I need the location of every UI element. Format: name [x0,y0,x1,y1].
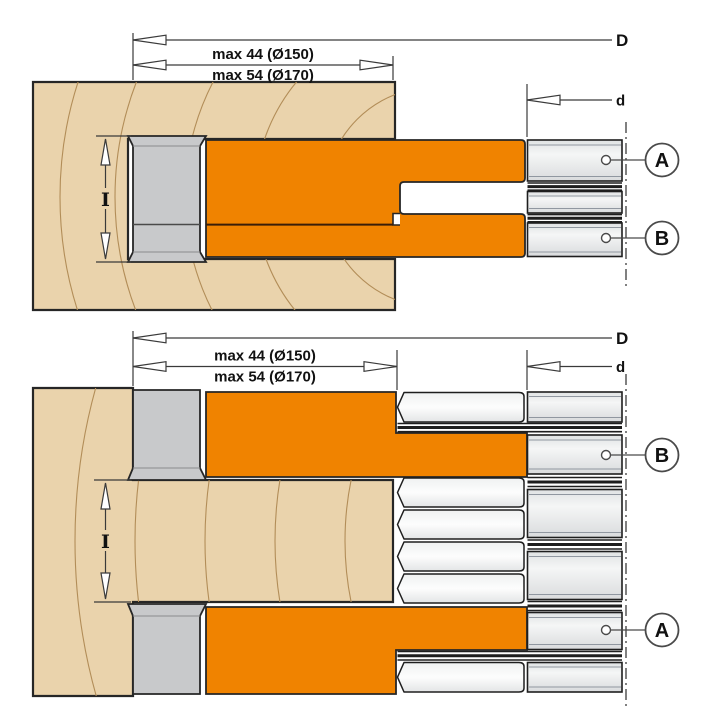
max-width-150-label: max 44 (Ø150) [214,348,316,365]
dimension-max-cut-width: max 44 (Ø150) max 54 (Ø170) [133,46,393,84]
blade-b-marker [602,451,611,460]
dimension-bore: d [527,84,625,137]
shim-separator [528,540,623,549]
diameter-label: D [616,31,628,50]
groove-cutter-technical-diagram: A B D max 44 (Ø150) max 54 (Ø170) d [0,0,728,728]
spacer-ring [528,552,623,600]
callout-a-label: A [655,150,669,172]
shim-separator [528,478,623,487]
callout-a-label: A [655,620,669,642]
max-width-150-label: max 44 (Ø150) [212,46,314,63]
shim-separator [528,215,623,222]
shim-separator [528,183,623,190]
groove-width-label: I [101,189,110,211]
blade-a-marker [602,626,611,635]
blade-b-marker [602,234,611,243]
hub-spindle-upper [128,390,206,480]
diameter-label: D [616,329,628,348]
max-width-170-label: max 54 (Ø170) [212,67,314,84]
shim-separator [398,424,623,432]
groove-width-label: I [101,531,110,553]
dimension-outer-diameter: D [133,329,628,386]
blade-a-marker [602,156,611,165]
shim-separator [528,602,623,611]
hub-spindle-lower [128,604,206,694]
hub-spindle [128,136,206,262]
max-width-170-label: max 54 (Ø170) [214,369,316,386]
dimension-outer-diameter: D [133,31,628,80]
dimension-bore: d [527,350,625,390]
cutter-body-closed [206,140,525,257]
bore-label: d [616,93,625,110]
diagram-page: A B D max 44 (Ø150) max 54 (Ø170) d [0,0,728,728]
middle-spacer [528,192,623,214]
shim-separator [398,652,623,661]
spacer-ring [528,490,623,538]
callout-b-label: B [655,228,669,250]
adjustment-step-notch [393,214,400,226]
dimension-max-cut-width: max 44 (Ø150) max 54 (Ø170) [133,348,397,391]
callout-b-label: B [655,445,669,467]
bore-label: d [616,359,625,376]
